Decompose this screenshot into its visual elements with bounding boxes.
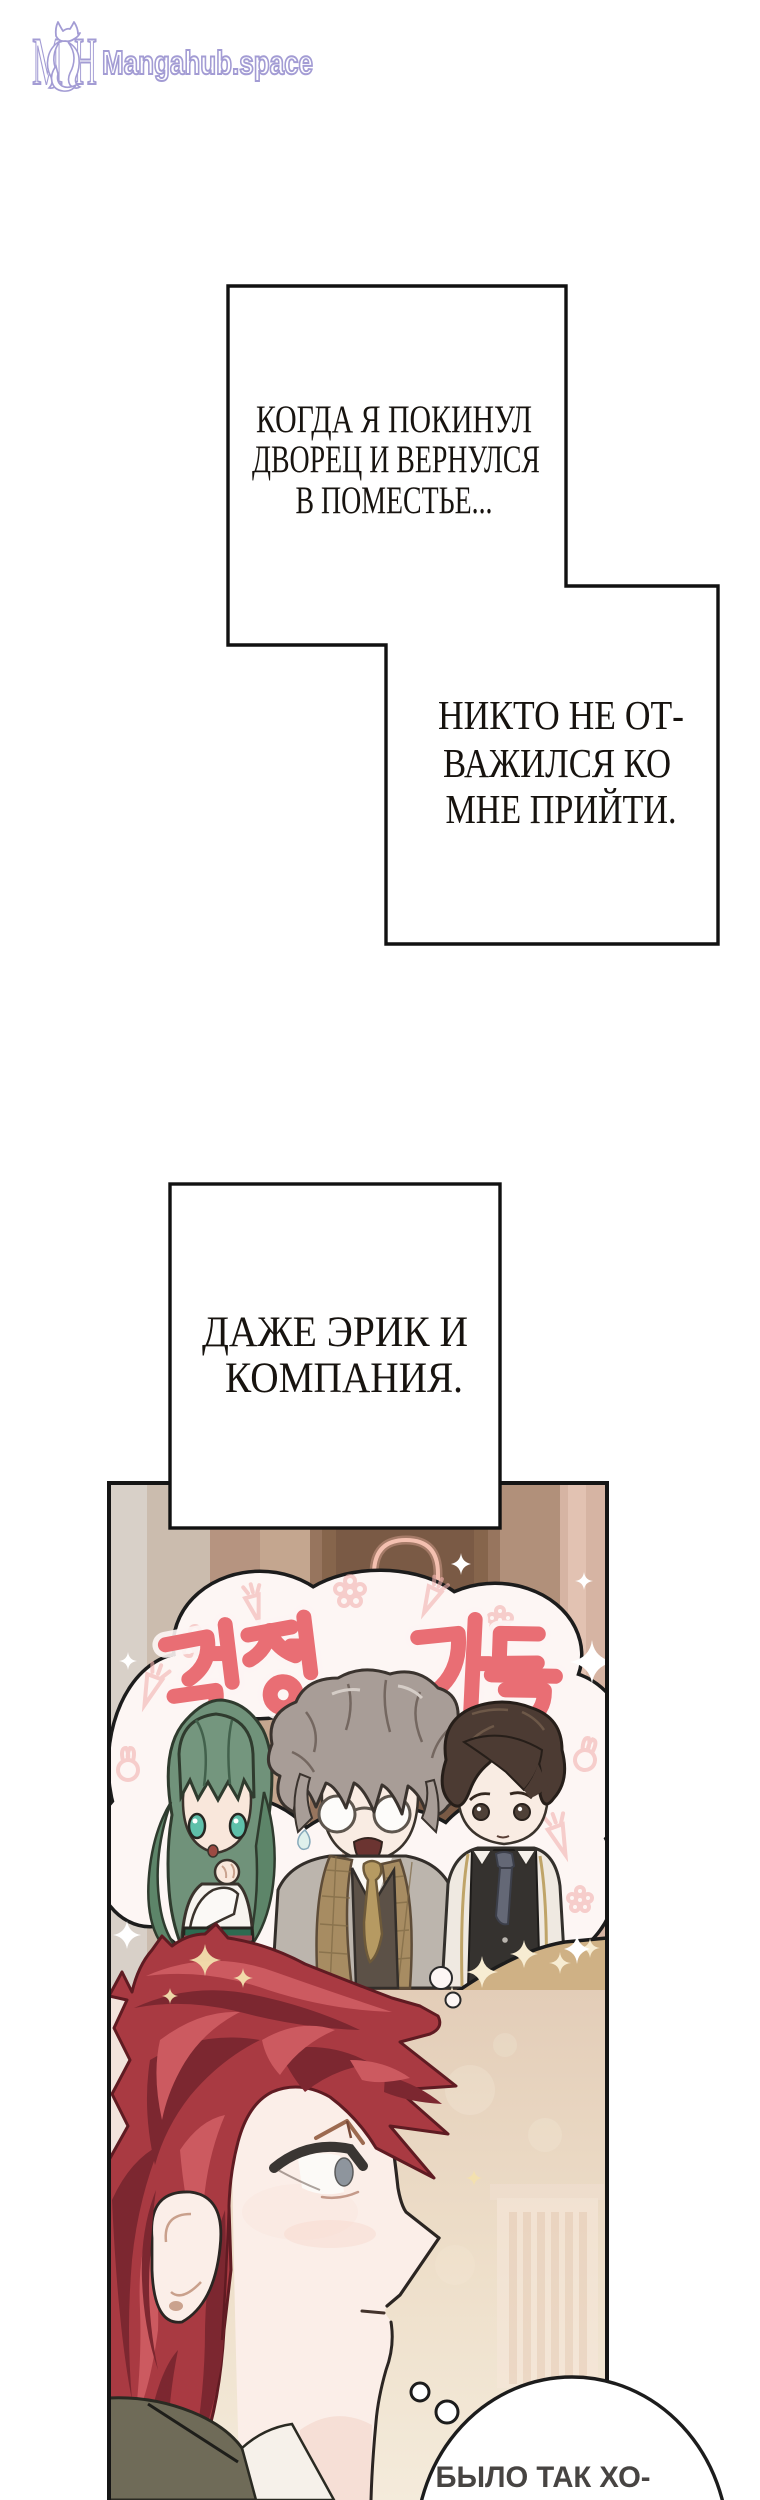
svg-text:МНЕ ПРИЙТИ.: МНЕ ПРИЙТИ. — [446, 786, 677, 832]
svg-text:В ПОМЕСТЬЕ...: В ПОМЕСТЬЕ... — [296, 479, 493, 522]
svg-text:ДВОРЕЦ И ВЕРНУЛСЯ: ДВОРЕЦ И ВЕРНУЛСЯ — [252, 438, 540, 481]
svg-text:КОГДА Я ПОКИНУЛ: КОГДА Я ПОКИНУЛ — [256, 398, 532, 441]
svg-text:БЫЛО ТАК ХО-: БЫЛО ТАК ХО- — [436, 2461, 651, 2494]
svg-text:Mangahub.space: Mangahub.space — [102, 44, 313, 81]
svg-text:КОМПАНИЯ.: КОМПАНИЯ. — [225, 1355, 463, 1402]
svg-text:ВАЖИЛСЯ КО: ВАЖИЛСЯ КО — [443, 740, 671, 786]
svg-text:НИКТО НЕ ОТ-: НИКТО НЕ ОТ- — [438, 692, 684, 738]
svg-text:ДАЖЕ ЭРИК И: ДАЖЕ ЭРИК И — [202, 1309, 468, 1356]
